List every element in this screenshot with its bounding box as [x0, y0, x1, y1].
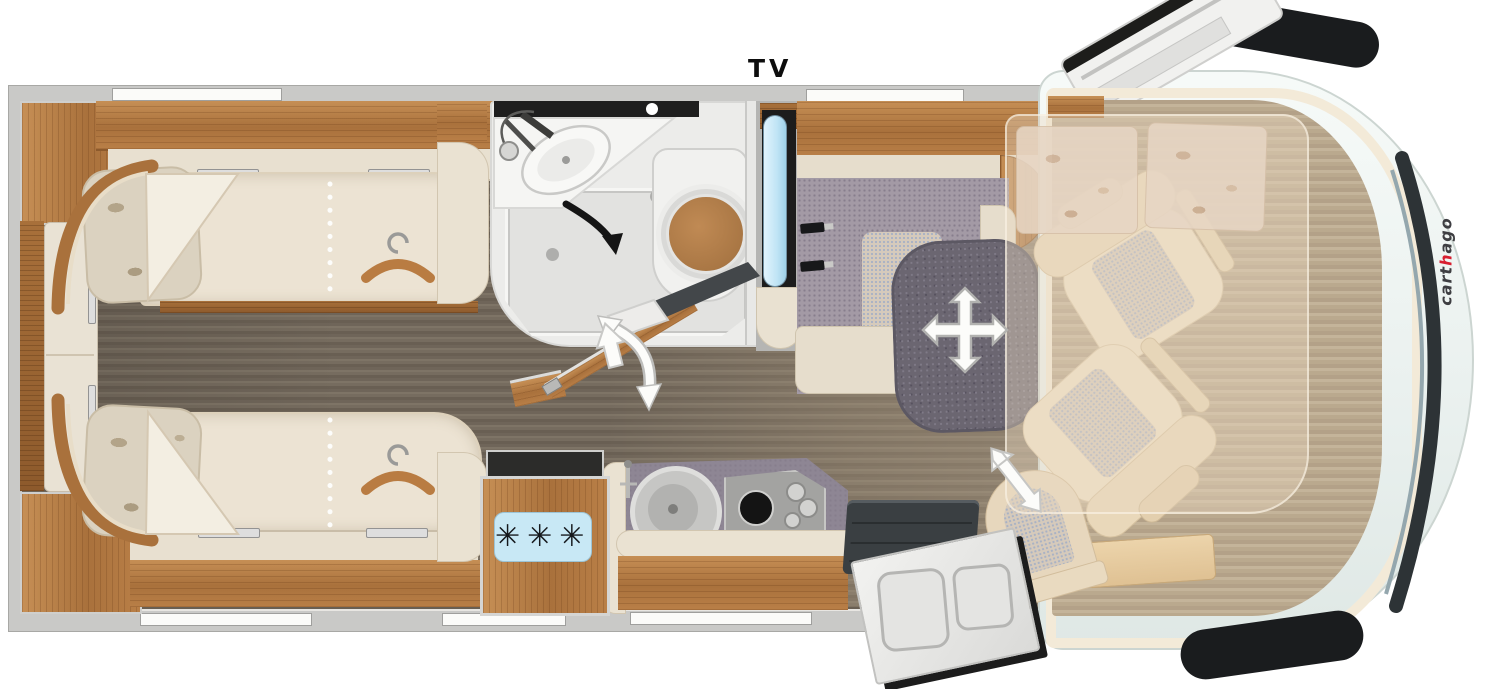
hob-burner-small-2: [798, 498, 818, 518]
kitchen-sink-drain: [668, 504, 678, 514]
shower-drain-dot-1: [546, 248, 559, 261]
logo-part-1: cart: [1437, 266, 1456, 306]
shower-glass-wall: [494, 101, 699, 117]
shower-light: [646, 103, 658, 115]
kitchen-handle-bar: [630, 612, 812, 625]
bed-bottom-bench-front: [130, 560, 480, 607]
bed-bottom-pillow: [81, 403, 204, 541]
window-rear-bottom: [140, 613, 312, 626]
snowflake-symbols: ✳✳✳: [495, 513, 591, 561]
bed-bottom-locker-handle-2: [366, 528, 428, 538]
bed-top-front-board: [160, 301, 478, 313]
bed-top-foot-cabinet: [437, 142, 489, 304]
dropdown-bed-cushion-1: [1016, 126, 1138, 234]
hob-burner-small-3: [784, 512, 801, 529]
brand-logo: carthago: [1366, 252, 1500, 278]
bed-top-pillow: [81, 165, 204, 305]
bed-bottom-locker-handle-1: [198, 528, 260, 538]
dropdown-bed-cushion-2: [1144, 122, 1268, 232]
logo-part-2: ago: [1437, 217, 1456, 253]
door-molding-2: [952, 563, 1015, 632]
door-molding-1: [876, 567, 951, 653]
window-rear-top: [112, 88, 282, 101]
motorhome-floorplan: ✳✳✳: [0, 0, 1500, 689]
kitchen-drawer-front: [618, 556, 848, 610]
tv-screen: [763, 115, 787, 287]
fridge-frost-panel: ✳✳✳: [494, 512, 592, 562]
toilet-lid-wood: [666, 194, 746, 274]
kitchen-counter-front: [616, 530, 850, 558]
step-mat-seam-1: [852, 522, 972, 524]
hob-burner-large: [738, 490, 774, 526]
rear-side-ledge: [20, 221, 44, 491]
rear-wardrobe-divider: [46, 354, 94, 356]
bed-top-foot-shelf: [437, 101, 487, 141]
tv-label: TV: [748, 54, 808, 82]
logo-accent: h: [1437, 254, 1456, 266]
